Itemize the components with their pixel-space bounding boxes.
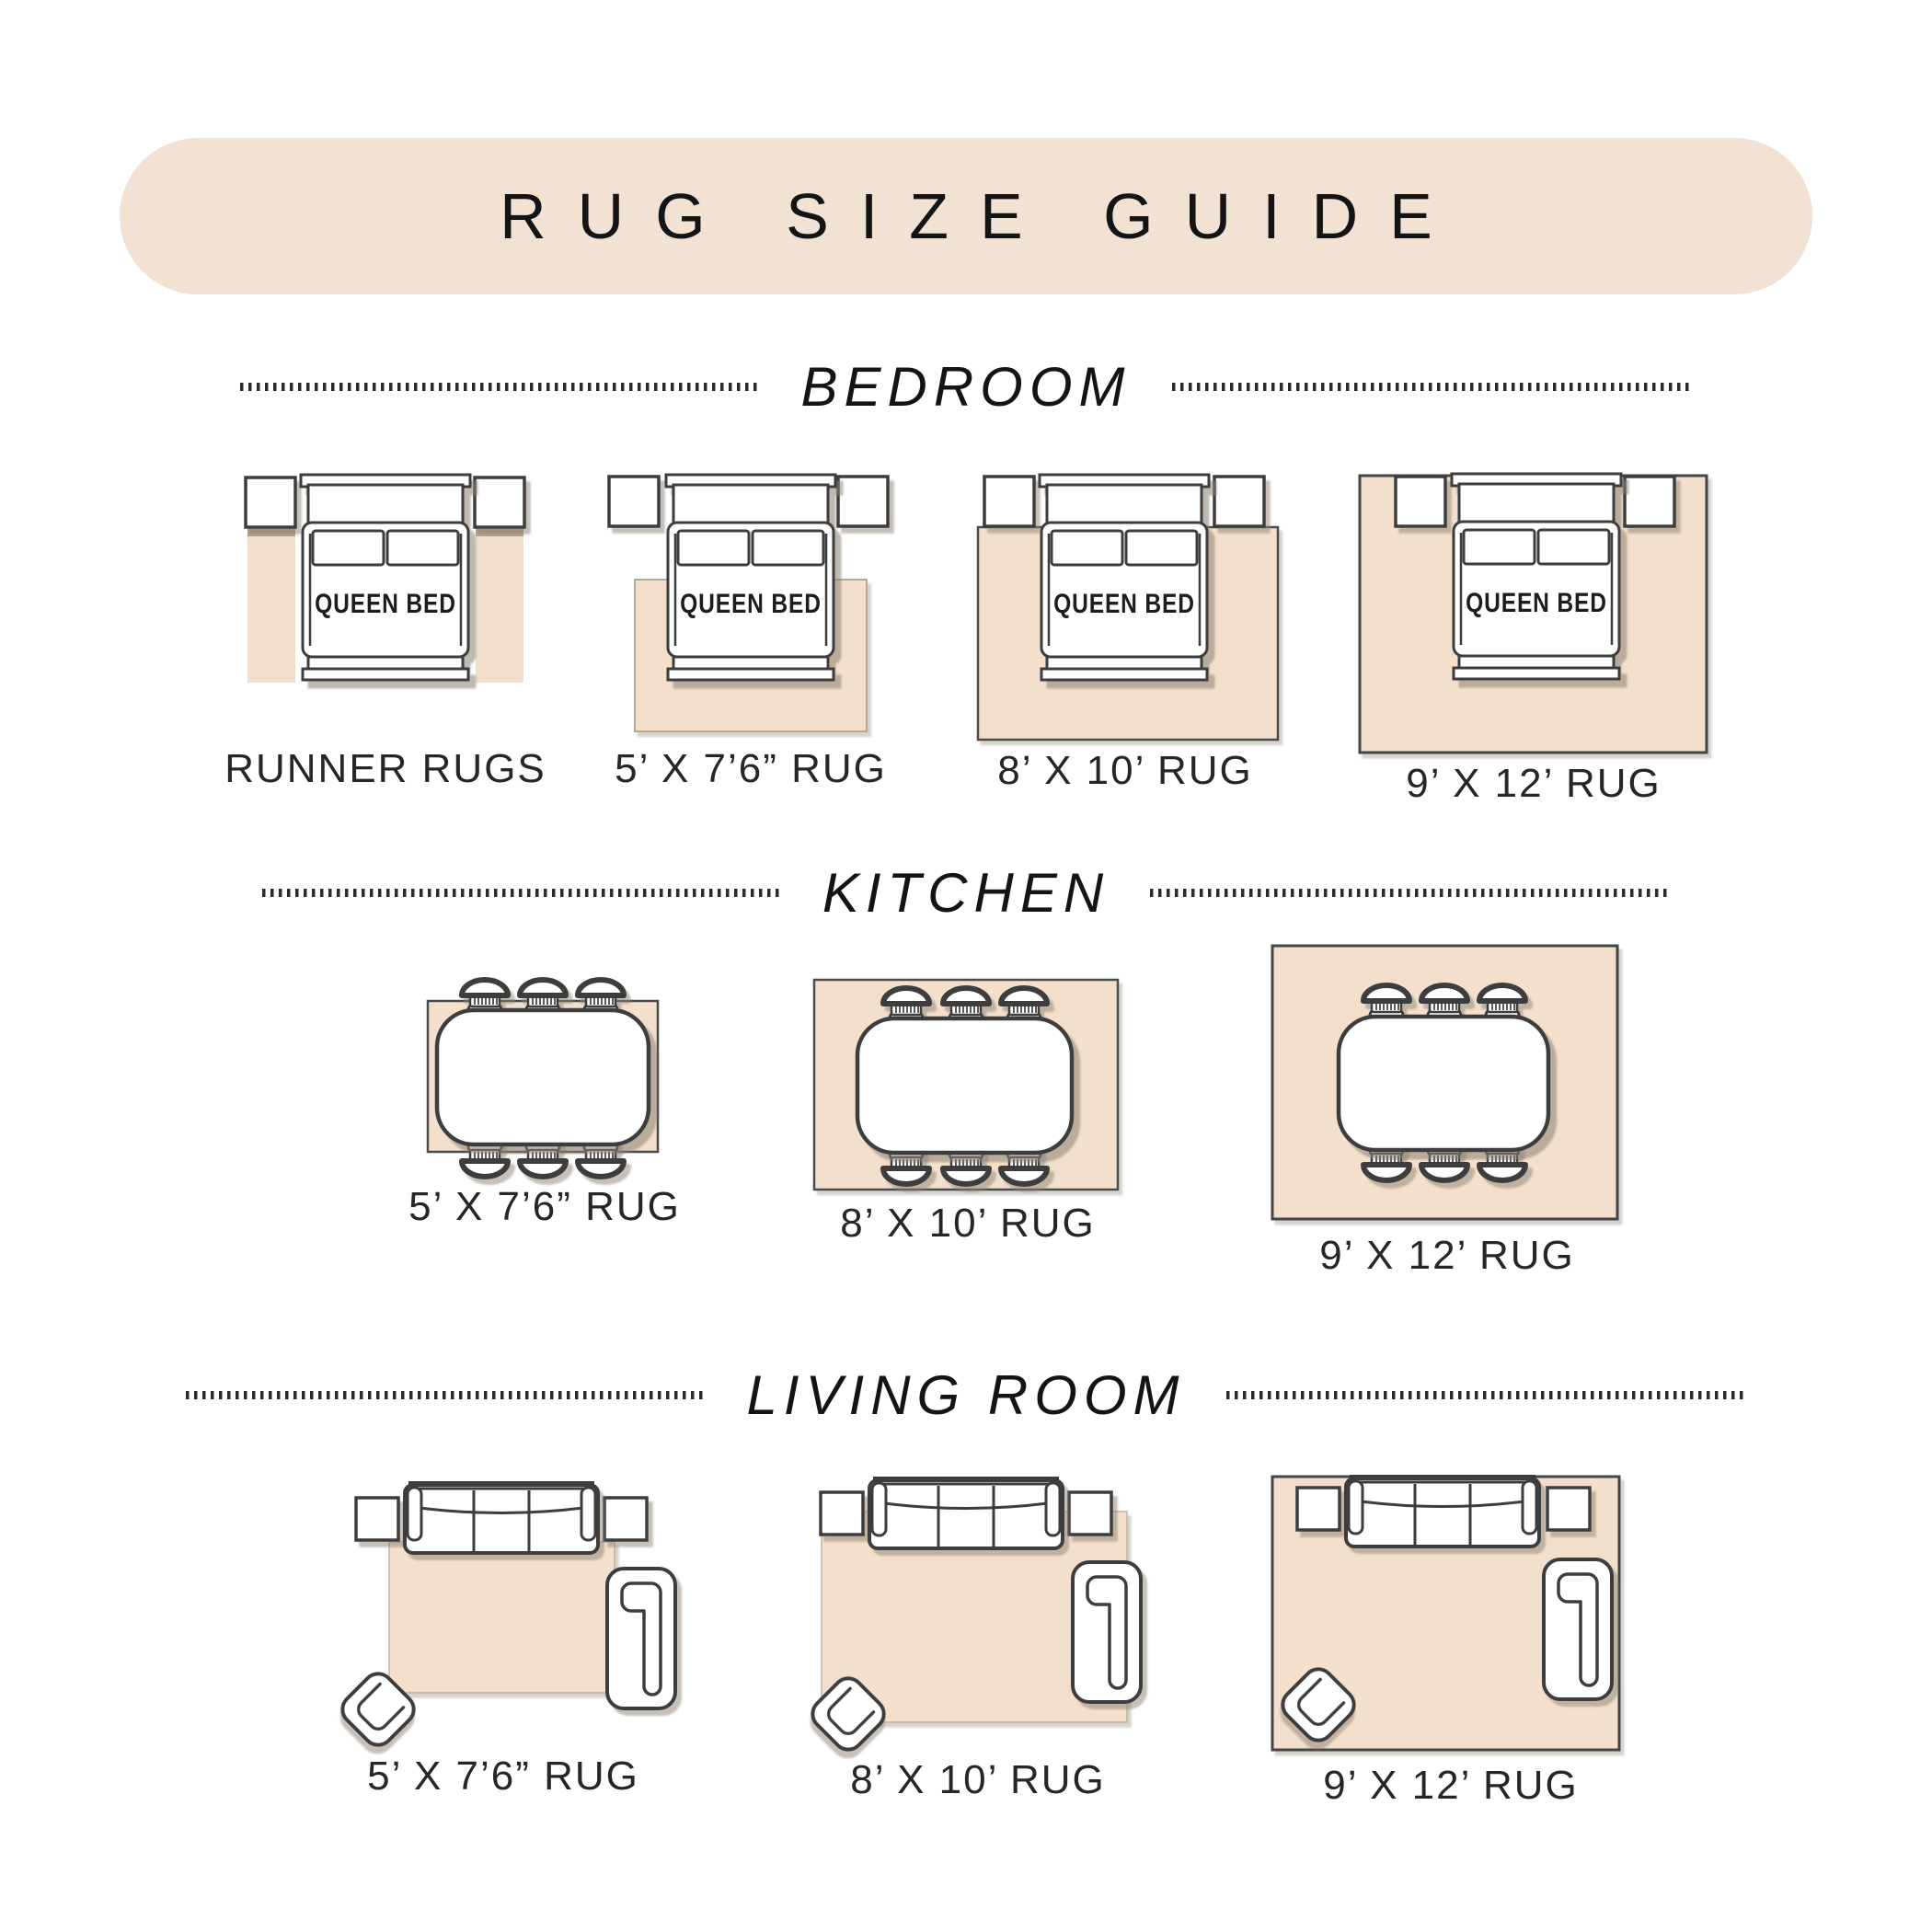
- queen-bed-label: QUEEN BED: [680, 589, 822, 620]
- rug-size-label: 8’ X 10’ RUG: [840, 1201, 1096, 1247]
- rug-size-label: RUNNER RUGS: [224, 746, 546, 792]
- nightstand-icon: [246, 477, 295, 527]
- side-table-icon: [821, 1492, 863, 1535]
- area-rug-icon: [389, 1542, 615, 1693]
- nightstand-icon: [984, 477, 1034, 526]
- nightstand-icon: [1214, 477, 1264, 526]
- sofa-icon: [405, 1481, 598, 1553]
- queen-bed-icon: [1040, 475, 1209, 680]
- rug-size-guide-page: RUG SIZE GUIDE BEDROOM KITCHEN LIVING RO…: [0, 0, 1932, 1932]
- queen-bed-label: QUEEN BED: [315, 589, 456, 620]
- living-room-5x76-diagram: [337, 1481, 675, 1751]
- rug-size-label: 8’ X 10’ RUG: [850, 1757, 1106, 1803]
- nightstand-icon: [1396, 477, 1445, 526]
- side-table-icon: [1069, 1492, 1111, 1535]
- rug-size-label: 5’ X 7’6” RUG: [615, 746, 887, 792]
- side-table-icon: [1547, 1488, 1590, 1530]
- queen-bed-icon: [666, 475, 835, 680]
- chaise-icon: [607, 1569, 675, 1708]
- nightstand-icon: [1625, 477, 1674, 526]
- living-room-9x12-diagram: [1272, 1475, 1619, 1750]
- rug-size-label: 9’ X 12’ RUG: [1323, 1763, 1579, 1809]
- bedroom-runner-diagram: [246, 475, 524, 683]
- runner-rug-icon: [247, 528, 295, 683]
- sofa-icon: [869, 1477, 1063, 1548]
- side-table-icon: [1297, 1488, 1340, 1530]
- rug-size-label: 5’ X 7’6” RUG: [408, 1184, 681, 1230]
- nightstand-icon: [475, 477, 524, 527]
- diagrams-canvas: [0, 0, 1932, 1932]
- queen-bed-icon: [1452, 474, 1621, 679]
- rug-size-label: 9’ X 12’ RUG: [1319, 1233, 1575, 1279]
- dining-table-icon: [1339, 1017, 1548, 1150]
- runner-rug-icon: [476, 528, 523, 683]
- chaise-icon: [1544, 1559, 1612, 1699]
- side-table-icon: [604, 1498, 647, 1540]
- queen-bed-label: QUEEN BED: [1053, 589, 1195, 620]
- kitchen-5x76-diagram: [428, 980, 658, 1177]
- nightstand-icon: [609, 477, 659, 526]
- living-room-8x10-diagram: [807, 1477, 1141, 1755]
- sofa-icon: [1346, 1475, 1539, 1547]
- rug-size-label: 8’ X 10’ RUG: [997, 748, 1253, 794]
- kitchen-8x10-diagram: [814, 980, 1118, 1190]
- side-table-icon: [356, 1498, 398, 1540]
- rug-size-label: 5’ X 7’6” RUG: [367, 1754, 639, 1800]
- rug-size-label: 9’ X 12’ RUG: [1406, 761, 1662, 807]
- kitchen-9x12-diagram: [1272, 946, 1617, 1219]
- nightstand-icon: [838, 477, 888, 526]
- chaise-icon: [1073, 1562, 1141, 1702]
- queen-bed-icon: [301, 475, 470, 680]
- dining-table-icon: [437, 1010, 649, 1144]
- queen-bed-label: QUEEN BED: [1466, 588, 1607, 619]
- dining-table-icon: [857, 1018, 1072, 1153]
